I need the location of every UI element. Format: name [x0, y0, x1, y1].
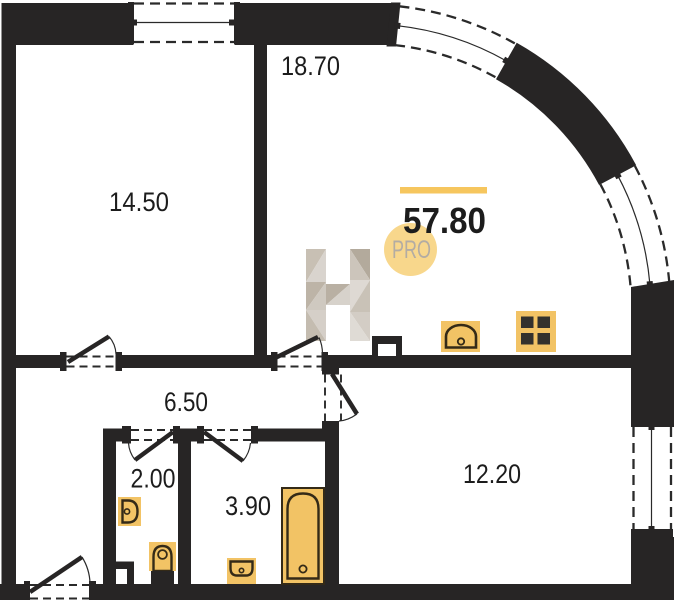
- svg-text:18.70: 18.70: [281, 51, 340, 81]
- svg-text:12.20: 12.20: [463, 459, 521, 489]
- svg-text:2.00: 2.00: [131, 464, 176, 494]
- svg-text:6.50: 6.50: [164, 387, 208, 417]
- svg-text:3.90: 3.90: [225, 491, 271, 521]
- svg-text:14.50: 14.50: [109, 187, 169, 217]
- svg-text:57.80: 57.80: [403, 200, 486, 241]
